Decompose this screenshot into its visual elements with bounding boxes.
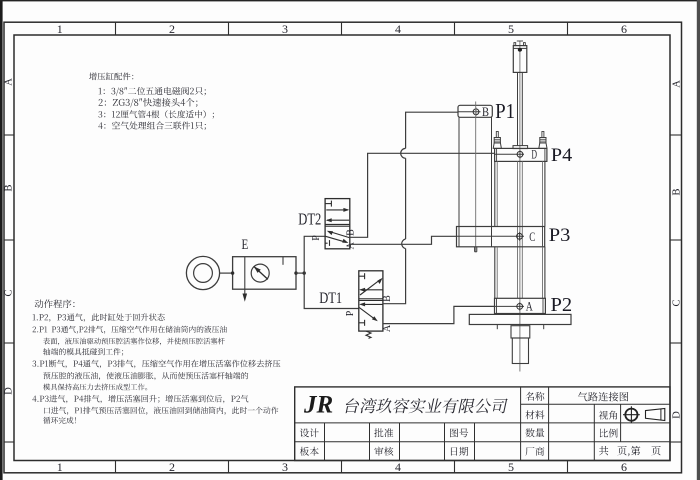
svg-text:P2: P2 xyxy=(551,294,573,316)
svg-text:4: 4 xyxy=(395,22,401,36)
svg-text:B: B xyxy=(346,229,357,236)
svg-text:6: 6 xyxy=(621,22,627,36)
svg-text:B: B xyxy=(382,295,393,302)
svg-text:B: B xyxy=(672,188,683,195)
svg-text:D: D xyxy=(532,146,538,161)
svg-text:A: A xyxy=(4,78,15,86)
svg-text:P3: P3 xyxy=(549,225,571,246)
svg-text:A: A xyxy=(672,80,683,88)
svg-text:P: P xyxy=(311,235,322,241)
svg-text:DT1: DT1 xyxy=(319,290,342,307)
svg-text:3: 3 xyxy=(282,22,288,36)
svg-text:D: D xyxy=(4,387,15,395)
svg-text:P: P xyxy=(345,310,356,316)
svg-text:3: 3 xyxy=(282,460,288,474)
svg-text:C: C xyxy=(4,289,15,296)
svg-text:C: C xyxy=(529,229,535,244)
svg-text:2: 2 xyxy=(169,22,175,36)
svg-text:A: A xyxy=(346,241,357,249)
svg-text:E: E xyxy=(242,237,249,253)
svg-text:6: 6 xyxy=(621,460,627,474)
svg-text:A: A xyxy=(526,299,533,314)
svg-text:DT2: DT2 xyxy=(298,210,321,229)
svg-text:C: C xyxy=(672,299,683,306)
svg-text:1: 1 xyxy=(57,22,63,36)
svg-text:B: B xyxy=(482,104,489,119)
svg-text:D: D xyxy=(672,411,683,419)
svg-text:1: 1 xyxy=(57,460,63,474)
svg-text:2: 2 xyxy=(169,460,175,474)
svg-text:JR: JR xyxy=(303,392,333,419)
svg-text:5: 5 xyxy=(508,22,514,36)
svg-text:B: B xyxy=(4,184,15,191)
svg-text:5: 5 xyxy=(508,460,514,474)
svg-text:P1: P1 xyxy=(495,99,515,123)
svg-text:A: A xyxy=(382,324,393,332)
svg-text:4: 4 xyxy=(395,460,401,474)
svg-text:P4: P4 xyxy=(551,145,573,166)
